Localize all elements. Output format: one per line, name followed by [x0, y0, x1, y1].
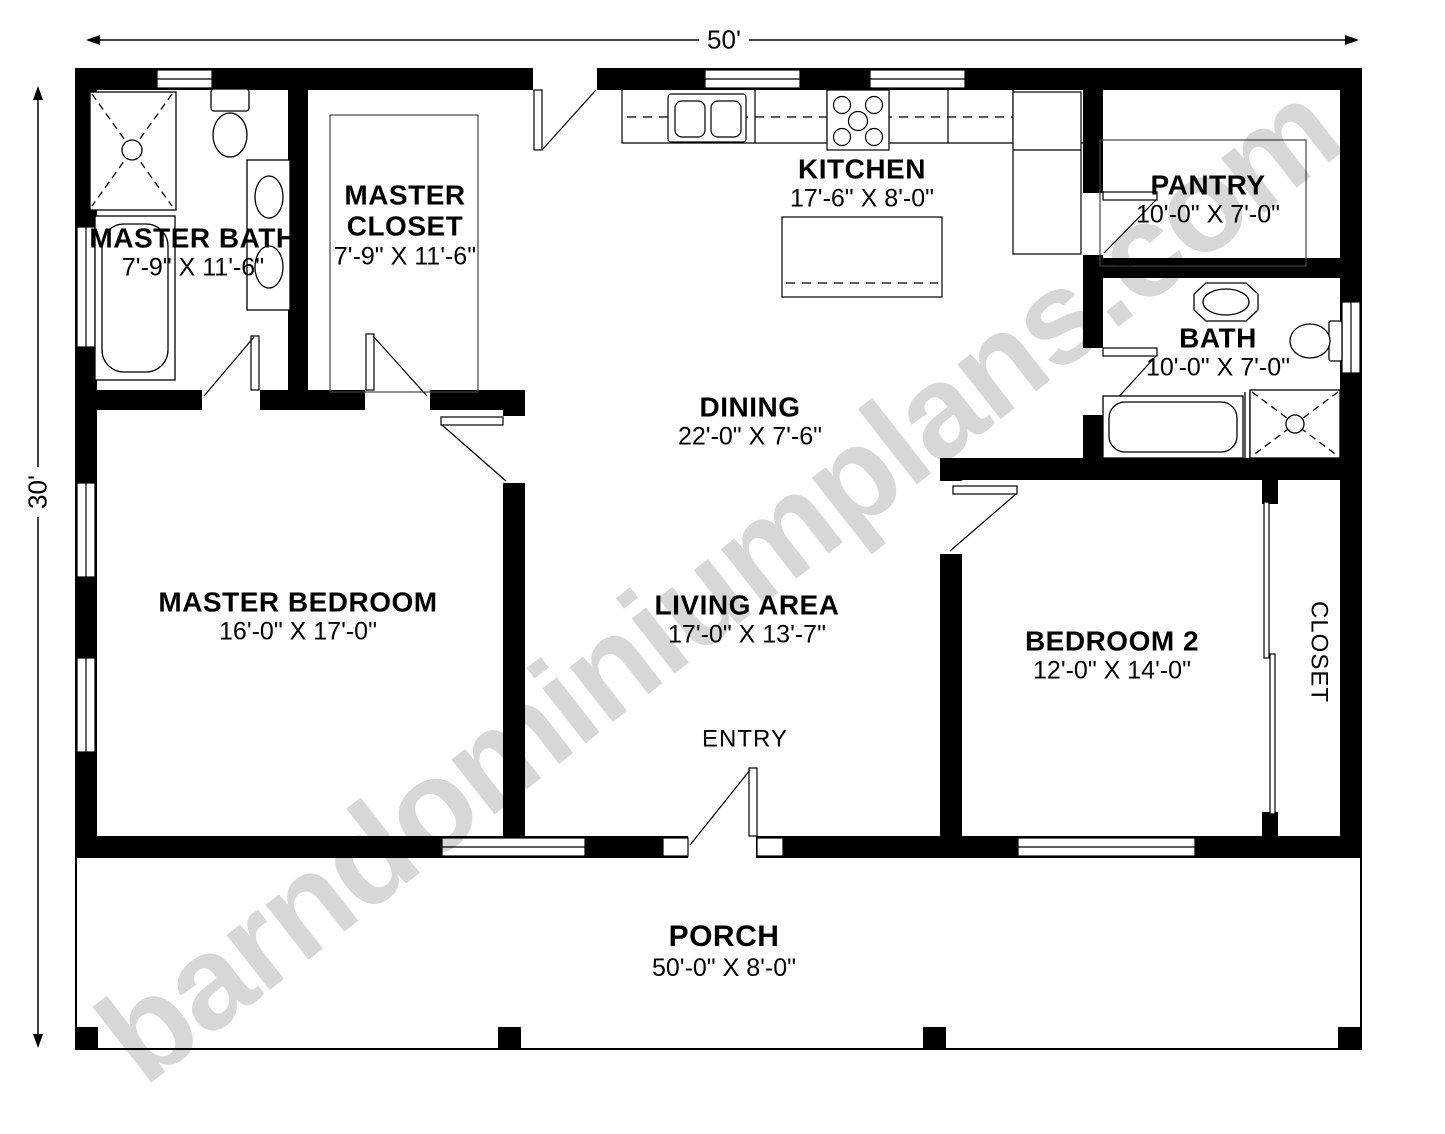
- room-label-master-bedroom: MASTER BEDROOM 16'-0" X 17'-0": [158, 586, 437, 645]
- window: [77, 483, 95, 577]
- room-label-living-area: LIVING AREA 17'-0" X 13'-7": [655, 589, 840, 648]
- window: [77, 658, 95, 752]
- room-size: 50'-0" X 8'-0": [652, 954, 796, 982]
- porch-post: [498, 1027, 521, 1050]
- kitchen-sink: [668, 94, 746, 142]
- room-name: KITCHEN: [790, 153, 934, 184]
- room-size: 17'-0" X 13'-7": [655, 621, 840, 649]
- room-name: LIVING AREA: [655, 589, 840, 620]
- room-size: 10'-0" X 7'-0": [1136, 201, 1280, 229]
- room-name: MASTER BEDROOM: [158, 586, 437, 617]
- window: [705, 70, 800, 88]
- window: [442, 838, 585, 856]
- master-bath-door: [204, 336, 259, 396]
- room-size: 12'-0" X 14'-0": [1025, 657, 1199, 685]
- room-label-dining: DINING 22'-0" X 7'-6": [678, 391, 822, 450]
- bath-sink: [1194, 283, 1258, 321]
- room-name: BEDROOM 2: [1025, 625, 1199, 656]
- master-closet-door: [366, 334, 427, 396]
- dimension-width-label: 50': [699, 25, 749, 56]
- room-size: 22'-0" X 7'-6": [678, 423, 822, 451]
- window: [1018, 838, 1195, 856]
- room-label-entry: ENTRY: [702, 727, 788, 754]
- room-label-pantry: PANTRY 10'-0" X 7'-0": [1136, 169, 1280, 228]
- dimension-line-left: [33, 86, 43, 1048]
- room-label-closet: CLOSET: [1305, 601, 1332, 703]
- shower: [90, 92, 176, 210]
- dimension-height-label: 30': [23, 467, 54, 517]
- kitchen-island: [782, 217, 942, 297]
- room-size: 7'-9" X 11'-6": [334, 242, 476, 270]
- room-name: MASTER BATH: [89, 222, 296, 253]
- room-size: 17'-6" X 8'-0": [790, 185, 934, 213]
- rear-door: [534, 90, 596, 150]
- room-name: DINING: [678, 391, 822, 422]
- bath-toilet: [1290, 321, 1342, 361]
- bath-shower: [1245, 390, 1340, 458]
- room-label-bath: BATH 10'-0" X 7'-0": [1146, 322, 1290, 381]
- room-name: BATH: [1146, 322, 1290, 353]
- room-name: ENTRY: [702, 727, 788, 754]
- porch-post: [923, 1027, 946, 1050]
- floor-plan: 50' 30' MASTER BATH 7'-9" X 11'-6" MASTE…: [0, 0, 1445, 1134]
- room-name: CLOSET: [334, 211, 476, 242]
- window: [870, 70, 965, 88]
- closet-sliding-door: [1264, 502, 1275, 814]
- window: [157, 70, 212, 88]
- room-label-kitchen: KITCHEN 17'-6" X 8'-0": [790, 153, 934, 212]
- room-label-bedroom2: BEDROOM 2 12'-0" X 14'-0": [1025, 625, 1199, 684]
- room-name: MASTER: [334, 180, 476, 211]
- room-name: PANTRY: [1136, 169, 1280, 200]
- room-label-porch: PORCH 50'-0" X 8'-0": [652, 920, 796, 982]
- room-size: 7'-9" X 11'-6": [89, 254, 296, 282]
- room-name: PORCH: [652, 920, 796, 954]
- refrigerator: [1013, 92, 1081, 254]
- room-label-master-closet: MASTER CLOSET 7'-9" X 11'-6": [334, 180, 476, 271]
- toilet: [211, 89, 249, 157]
- room-label-master-bath: MASTER BATH 7'-9" X 11'-6": [89, 222, 296, 281]
- stove: [827, 90, 889, 150]
- master-bedroom-door: [441, 417, 506, 481]
- window: [1342, 302, 1360, 373]
- porch-post: [75, 1027, 98, 1050]
- room-name: CLOSET: [1305, 601, 1332, 703]
- porch-post: [1338, 1027, 1361, 1050]
- room-size: 10'-0" X 7'-0": [1146, 354, 1290, 382]
- bath-tub: [1103, 396, 1243, 458]
- room-size: 16'-0" X 17'-0": [158, 618, 437, 646]
